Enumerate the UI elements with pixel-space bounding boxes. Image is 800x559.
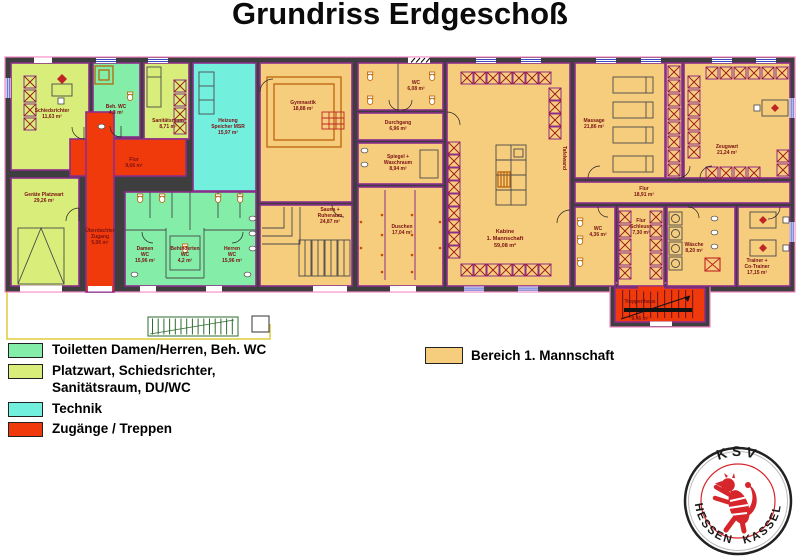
svg-text:24,87 m²: 24,87 m² (320, 219, 340, 225)
legend-label-toiletten: Toiletten Damen/Herren, Beh. WC (52, 341, 266, 359)
room-label: Kabine (496, 229, 514, 235)
corridor-zugang (86, 112, 114, 292)
page-title: Grundriss Erdgeschoß (0, 0, 800, 32)
svg-text:18,91 m²: 18,91 m² (634, 192, 654, 198)
legend-swatch-technik (8, 402, 43, 417)
legend-row-technik: Technik (8, 400, 266, 418)
ksv-logo: KSV HESSEN KASSEL (682, 445, 794, 557)
legend-row-toiletten: Toiletten Damen/Herren, Beh. WC (8, 341, 266, 359)
legend-label-zugaenge: Zugänge / Treppen (52, 420, 172, 438)
legend-label-bereich: Bereich 1. Mannschaft (471, 348, 614, 363)
svg-text:21,24 m²: 21,24 m² (717, 150, 737, 156)
svg-text:8,71 m²: 8,71 m² (159, 124, 177, 130)
svg-text:29,26 m²: 29,26 m² (34, 198, 54, 204)
room-label: Treppenhaus (624, 299, 655, 305)
stair-treads (152, 319, 233, 335)
legend: Toiletten Damen/Herren, Beh. WC Platzwar… (8, 341, 266, 441)
legend-swatch-platzwart (8, 364, 43, 379)
walkway-marker (252, 316, 269, 332)
svg-text:6,96 m²: 6,96 m² (389, 126, 407, 132)
legend-swatch-bereich (425, 347, 463, 364)
legend-label-platzwart: Platzwart, Schiedsrichter, Sanitätsraum,… (52, 362, 216, 397)
svg-text:18,88 m²: 18,88 m² (293, 106, 313, 112)
svg-text:7,30 m²: 7,30 m² (632, 230, 650, 236)
corridor-flur-rechts (575, 182, 790, 203)
svg-text:17,04 m²: 17,04 m² (392, 230, 412, 236)
svg-text:11,63 m²: 11,63 m² (42, 114, 62, 120)
exterior-staircase (148, 317, 238, 336)
legend-row-zugaenge: Zugänge / Treppen (8, 420, 266, 438)
legend-bereich: Bereich 1. Mannschaft (425, 347, 614, 364)
room-kabine (447, 63, 570, 286)
svg-text:9,66 m²: 9,66 m² (125, 163, 143, 169)
room-label: Überdachter (85, 227, 115, 234)
legend-swatch-toiletten (8, 343, 43, 358)
room-duschen (358, 187, 443, 286)
svg-text:17,15 m²: 17,15 m² (747, 270, 767, 276)
page: Grundriss Erdgeschoß (0, 0, 800, 559)
svg-text:5,06 m²: 5,06 m² (91, 240, 109, 246)
floor-plan-svg: Schiedsrichter 11,63 m² Beh. WC 4,3 m² S… (0, 45, 800, 345)
legend-swatch-zugaenge (8, 422, 43, 437)
svg-text:4,36 m²: 4,36 m² (589, 232, 607, 238)
svg-text:15,97 m²: 15,97 m² (218, 130, 238, 136)
tafelwand-label: Tafelwand (561, 146, 567, 170)
svg-text:8,20 m²: 8,20 m² (685, 248, 703, 254)
svg-text:4,2 m²: 4,2 m² (178, 258, 193, 264)
legend-row-platzwart: Platzwart, Schiedsrichter, Sanitätsraum,… (8, 362, 266, 397)
svg-text:1. Mannschaft: 1. Mannschaft (487, 236, 524, 242)
legend-label-technik: Technik (52, 400, 102, 418)
svg-text:15,96 m²: 15,96 m² (135, 258, 155, 264)
svg-text:4,3 m²: 4,3 m² (109, 110, 124, 116)
svg-text:8,94 m²: 8,94 m² (389, 166, 407, 172)
svg-text:6,08 m²: 6,08 m² (407, 86, 425, 92)
svg-text:21,86 m²: 21,86 m² (584, 124, 604, 130)
svg-text:59,08 m²: 59,08 m² (494, 242, 516, 249)
svg-text:9,46 m²: 9,46 m² (631, 316, 649, 322)
svg-text:15,96 m²: 15,96 m² (222, 258, 242, 264)
